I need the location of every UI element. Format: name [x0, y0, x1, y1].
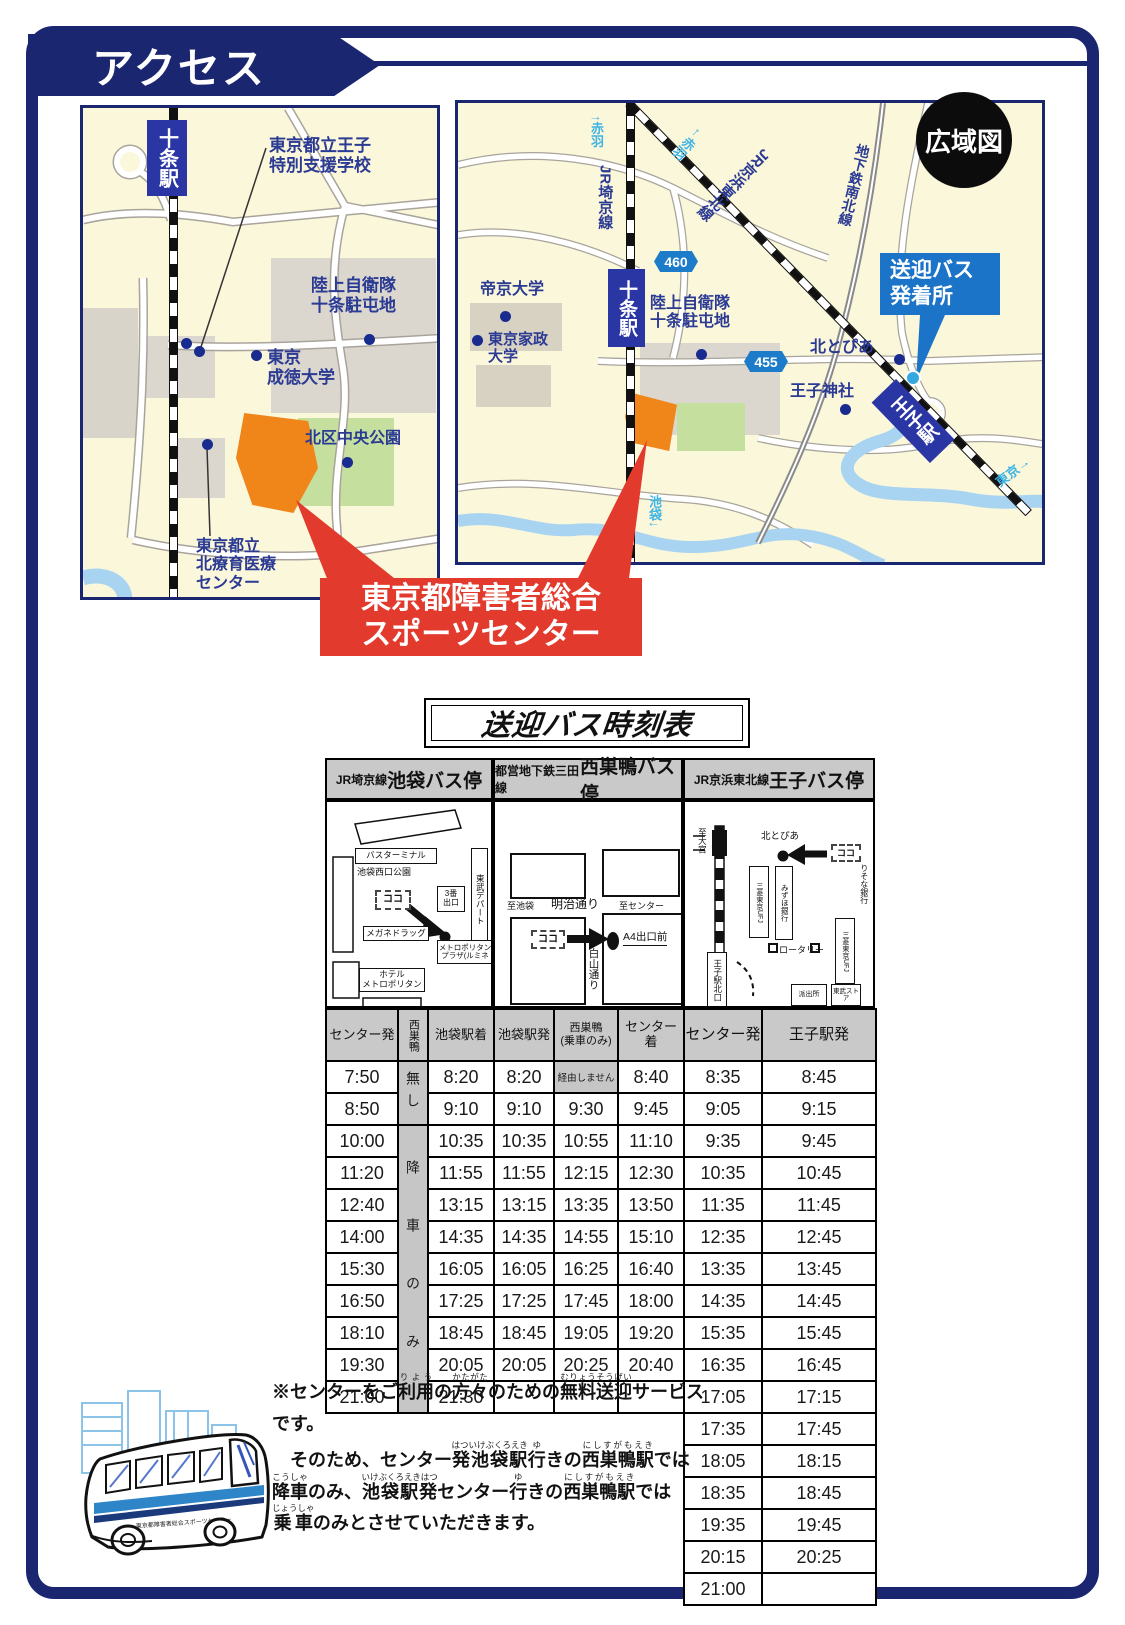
- shuttle-service-note: ※センターをご利用りようの方々かたがたのための無料送迎むりょうそうげいサービスで…: [272, 1372, 704, 1540]
- wide-area-map-badge: 広域図: [916, 92, 1012, 188]
- timetable-col-header: 西巣鴨 (乗車のみ): [554, 1009, 618, 1061]
- timetable-cell: 14:35: [428, 1221, 494, 1253]
- timetable-cell: 17:15: [762, 1381, 876, 1413]
- timetable-cell: 8:40: [618, 1061, 684, 1093]
- bus-stop-dot: [607, 932, 619, 950]
- teikyo-location-dot: [500, 311, 511, 322]
- timetable-cell: 18:45: [494, 1317, 554, 1349]
- timetable-cell: [762, 1573, 876, 1605]
- detail-map: 十条駅 東京都立王子 特別支援学校 陸上自衛隊 十条駐屯地 東京 成徳大学 北区…: [80, 105, 440, 600]
- timetable-row: 15:3016:0516:0516:2516:40: [326, 1253, 684, 1285]
- timetable-cell: 10:45: [762, 1157, 876, 1189]
- timetable-col-header: センター発: [684, 1009, 762, 1061]
- timetable-row: 14:3514:45: [684, 1285, 876, 1317]
- garrison-label: 陸上自衛隊 十条駐屯地: [650, 295, 730, 332]
- tobu-department-label: 東武デパート: [471, 848, 488, 950]
- timetable-row: 10:00降車のみ10:3510:3510:5511:10: [326, 1125, 684, 1157]
- timetable-col-header: 王子駅発: [762, 1009, 876, 1061]
- megane-drug-label: メガネドラッグ: [363, 926, 429, 941]
- timetable-row: 18:0518:15: [684, 1445, 876, 1477]
- timetable-cell: 19:05: [554, 1317, 618, 1349]
- timetable-cell: 10:35: [428, 1125, 494, 1157]
- kasei-univ-label: 東京家政 大学: [488, 331, 548, 366]
- timetable-cell: 12:35: [684, 1221, 762, 1253]
- timetable-row: 9:359:45: [684, 1125, 876, 1157]
- oji-shrine-location-dot: [840, 404, 851, 415]
- hokutopia-location-dot: [894, 354, 905, 365]
- timetable-cell: 11:20: [326, 1157, 398, 1189]
- timetable-row: 12:3512:45: [684, 1221, 876, 1253]
- here-marker: ココ: [531, 930, 565, 949]
- jr-saikyo-label: JR埼京線: [596, 165, 613, 229]
- timetable-cell: 16:05: [428, 1253, 494, 1285]
- timetable-cell: 16:05: [494, 1253, 554, 1285]
- garrison-label: 陸上自衛隊 十条駐屯地: [311, 276, 396, 315]
- timetable-left: センター発西巣鴨池袋駅着池袋駅発西巣鴨 (乗車のみ)センター着7:50無し8:2…: [325, 1008, 685, 1414]
- bus-stop-dot: [778, 851, 789, 862]
- bus-terminal-label: バスターミナル: [355, 848, 437, 864]
- shuttle-stop-pointer: [916, 315, 945, 381]
- timetable-col-header: 西巣鴨: [398, 1009, 428, 1061]
- kasei-location-dot: [472, 335, 483, 346]
- timetable-cell: 16:50: [326, 1285, 398, 1317]
- building-location-dot: [181, 338, 192, 349]
- timetable-row: 8:358:45: [684, 1061, 876, 1093]
- timetable-cell: 11:10: [618, 1125, 684, 1157]
- medical-center-label: 東京都立 北療育医療 センター: [196, 538, 276, 593]
- timetable-cell: 13:15: [494, 1189, 554, 1221]
- to-center-label: 至センター: [619, 902, 664, 912]
- medical-pointer-line: [207, 448, 210, 536]
- timetable-cell: 21:00: [684, 1573, 762, 1605]
- a4-exit-label: A4出口前: [623, 932, 667, 946]
- callout-line1: 東京都障害者総合: [361, 581, 601, 617]
- oji-north-exit-label: 王子駅北口: [707, 952, 727, 1008]
- timetable-cell: 9:35: [684, 1125, 762, 1157]
- timetable-row: 17:0517:15: [684, 1381, 876, 1413]
- timetable-row: 11:3511:45: [684, 1189, 876, 1221]
- seitoku-location-dot: [251, 350, 262, 361]
- timetable-header-row: センター発王子駅発: [684, 1009, 876, 1061]
- timetable-cell: 20:15: [684, 1541, 762, 1573]
- minimap-nishisugamo: 至池袋 明治通り 至センター ココ A4出口前 白山通り: [493, 800, 683, 1008]
- timetable-cell: 12:40: [326, 1189, 398, 1221]
- timetable-cell: 12:45: [762, 1221, 876, 1253]
- ufj-bank-label: 三菱東京UFJ: [749, 866, 769, 938]
- metropolitan-plaza-label: メトロポリタン プラザ(ルミネ: [437, 940, 493, 964]
- nishisugamo-dropoff-cell: 降車のみ: [398, 1125, 428, 1413]
- timetable-cell: 8:20: [428, 1061, 494, 1093]
- timetable-row: 8:509:109:109:309:45: [326, 1093, 684, 1125]
- timetable-cell: 17:25: [494, 1285, 554, 1317]
- here-marker: ココ: [375, 890, 411, 910]
- garrison-location-dot: [696, 349, 707, 360]
- akabane-direction-up: ↑赤羽: [588, 115, 603, 148]
- timetable-cell: 20:25: [762, 1541, 876, 1573]
- timetable-col-header: センター発: [326, 1009, 398, 1061]
- jujo-station-label: 十条駅: [147, 120, 187, 196]
- timetable-row: 21:00: [684, 1573, 876, 1605]
- section-head-oji: JR京浜東北線王子バス停: [683, 758, 875, 800]
- timetable-row: 14:0014:3514:3514:5515:10: [326, 1221, 684, 1253]
- timetable-cell: 9:10: [428, 1093, 494, 1125]
- minimap-oji: 至大宮 北とぴあ ココ りそな銀行 三菱東京UFJ みずほ銀行 ロータリー 王子…: [683, 800, 875, 1008]
- timetable-cell: 13:45: [762, 1253, 876, 1285]
- school-location-dot: [194, 346, 205, 357]
- timetable-cell: 13:50: [618, 1189, 684, 1221]
- timetable-row: 9:059:15: [684, 1093, 876, 1125]
- timetable-cell: 18:45: [428, 1317, 494, 1349]
- risona-bank-label: りそな銀行: [859, 864, 868, 904]
- hokutopia-label: 北とぴあ: [810, 339, 874, 357]
- timetable-cell: 14:45: [762, 1285, 876, 1317]
- timetable-cell: 10:35: [494, 1125, 554, 1157]
- minimap-ikebukuro: バスターミナル 池袋西口公園 ココ 3番 出口 東武デパート メガネドラッグ メ…: [325, 800, 493, 1008]
- meiji-dori-label: 明治通り: [551, 898, 599, 911]
- timetable-cell: 14:35: [684, 1285, 762, 1317]
- hakusan-dori-label: 白山通り: [587, 948, 599, 990]
- timetable-cell: 13:35: [554, 1189, 618, 1221]
- seitoku-univ-label: 東京 成徳大学: [267, 348, 335, 387]
- timetable-right: センター発王子駅発8:358:459:059:159:359:4510:3510…: [683, 1008, 877, 1606]
- mizuho-bank-label: みずほ銀行: [775, 866, 793, 940]
- page-title: アクセス: [28, 35, 266, 96]
- to-ikebukuro-label: 至池袋: [507, 902, 534, 912]
- timetable-row: 13:3513:45: [684, 1253, 876, 1285]
- here-marker: ココ: [831, 844, 861, 862]
- rotary-label: ロータリー: [779, 946, 824, 956]
- school-label: 東京都立王子 特別支援学校: [269, 136, 371, 175]
- shuttle-stop-callout: 送迎バス 発着所: [880, 253, 1000, 315]
- timetable-row: 18:1018:4518:4519:0519:20: [326, 1317, 684, 1349]
- timetable-row: 20:1520:25: [684, 1541, 876, 1573]
- timetable-cell: 18:10: [326, 1317, 398, 1349]
- timetable-cell: 9:45: [762, 1125, 876, 1157]
- timetable-cell: 19:20: [618, 1317, 684, 1349]
- timetable-col-header: 池袋駅発: [494, 1009, 554, 1061]
- medical-location-dot: [202, 439, 213, 450]
- timetable-cell: 19:45: [762, 1509, 876, 1541]
- timetable-cell: 9:15: [762, 1093, 876, 1125]
- timetable-cell: 14:35: [494, 1221, 554, 1253]
- shuttle-bus-illustration: 東京都障害者総合スポーツセンター: [70, 1385, 280, 1570]
- timetable-row: 19:3519:45: [684, 1509, 876, 1541]
- timetable-row: 16:5017:2517:2517:4518:00: [326, 1285, 684, 1317]
- timetable-cell: 18:00: [618, 1285, 684, 1317]
- timetable-cell: 17:45: [762, 1413, 876, 1445]
- timetable-cell: 8:45: [762, 1061, 876, 1093]
- garrison-location-dot: [364, 334, 375, 345]
- timetable-cell: 8:35: [684, 1061, 762, 1093]
- route-455-badge: 455: [744, 351, 788, 372]
- timetable-row: 18:3518:45: [684, 1477, 876, 1509]
- oji-shrine-label: 王子神社: [790, 383, 854, 401]
- access-flyer-page: アクセス: [0, 0, 1125, 1625]
- timetable-cell: 16:25: [554, 1253, 618, 1285]
- hotel-metropolitan-label: ホテル メトロポリタン: [359, 968, 425, 992]
- note-paragraph-2: そのため、センター発池袋駅はついけぶくろえき行ゆきの西巣鴨駅にしすがもえきでは降…: [272, 1440, 704, 1540]
- timetable-cell: 17:45: [554, 1285, 618, 1317]
- route-460-badge: 460: [654, 251, 698, 272]
- timetable-row: 12:4013:1513:1513:3513:50: [326, 1189, 684, 1221]
- section-head-ikebukuro: JR埼京線池袋バス停: [325, 758, 493, 800]
- callout-line2: スポーツセンター: [361, 617, 601, 653]
- timetable-cell: 18:45: [762, 1477, 876, 1509]
- timetable-header-row: センター発西巣鴨池袋駅着池袋駅発西巣鴨 (乗車のみ)センター着: [326, 1009, 684, 1061]
- timetable-title: 送迎バス時刻表: [480, 702, 694, 744]
- timetable-cell: 9:10: [494, 1093, 554, 1125]
- timetable-cell: 15:45: [762, 1317, 876, 1349]
- ufj-bank2-label: 三菱東京UFJ: [835, 918, 855, 984]
- tobu-store-label: 東武ストア: [831, 984, 861, 1006]
- timetable-row: 11:2011:5511:5512:1512:30: [326, 1157, 684, 1189]
- timetable-cell: 14:00: [326, 1221, 398, 1253]
- hokutopia-label: 北とぴあ: [761, 832, 799, 842]
- timetable-cell: 16:45: [762, 1349, 876, 1381]
- timetable-cell: 13:15: [428, 1189, 494, 1221]
- timetable-cell: 10:35: [684, 1157, 762, 1189]
- timetable-cell: 14:55: [554, 1221, 618, 1253]
- timetable-row: 7:50無し8:208:20経由しません8:40: [326, 1061, 684, 1093]
- timetable-cell: 11:35: [684, 1189, 762, 1221]
- nishiguchi-park-label: 池袋西口公園: [357, 868, 411, 878]
- timetable-cell: 8:50: [326, 1093, 398, 1125]
- river: [847, 395, 1045, 502]
- timetable-cell: 12:30: [618, 1157, 684, 1189]
- timetable-cell: 15:35: [684, 1317, 762, 1349]
- ikebukuro-direction: 池袋↓: [646, 495, 661, 528]
- nishisugamo-none-cell: 無し: [398, 1061, 428, 1125]
- exit3-label: 3番 出口: [437, 886, 465, 912]
- timetable-cell: 15:10: [618, 1221, 684, 1253]
- note-paragraph-1: ※センターをご利用りようの方々かたがたのための無料送迎むりょうそうげいサービスで…: [272, 1372, 704, 1440]
- timetable-row: 15:3515:45: [684, 1317, 876, 1349]
- timetable-title-box: 送迎バス時刻表: [424, 698, 750, 748]
- section-head-nishisugamo: 都営地下鉄三田線西巣鴨バス停: [493, 758, 683, 800]
- timetable-cell: 8:20: [494, 1061, 554, 1093]
- timetable-cell: 10:55: [554, 1125, 618, 1157]
- timetable-col-header: センター着: [618, 1009, 684, 1061]
- timetable-cell: 13:35: [684, 1253, 762, 1285]
- timetable-row: 17:3517:45: [684, 1413, 876, 1445]
- timetable-cell: 9:30: [554, 1093, 618, 1125]
- timetable-cell: 11:55: [428, 1157, 494, 1189]
- school-pointer-line: [200, 148, 266, 350]
- timetable-cell: 16:40: [618, 1253, 684, 1285]
- timetable-cell: 11:45: [762, 1189, 876, 1221]
- timetable-cell: 経由しません: [554, 1061, 618, 1093]
- sports-center-callout: 東京都障害者総合 スポーツセンター: [320, 578, 642, 656]
- page-title-banner: アクセス: [28, 34, 380, 96]
- timetable-cell: 17:25: [428, 1285, 494, 1317]
- jujo-station-label: 十条駅: [608, 269, 645, 347]
- timetable-cell: 11:55: [494, 1157, 554, 1189]
- park-label: 北区中央公園: [305, 430, 401, 448]
- timetable-cell: 10:00: [326, 1125, 398, 1157]
- timetable-cell: 15:30: [326, 1253, 398, 1285]
- to-omiya-label: 至大宮: [697, 828, 706, 854]
- banner-rule-line: [372, 61, 1094, 66]
- timetable-row: 10:3510:45: [684, 1157, 876, 1189]
- police-box-label: 派出所: [791, 984, 827, 1006]
- timetable-cell: 9:45: [618, 1093, 684, 1125]
- timetable-col-header: 池袋駅着: [428, 1009, 494, 1061]
- timetable-cell: 18:15: [762, 1445, 876, 1477]
- timetable-cell: 9:05: [684, 1093, 762, 1125]
- timetable-cell: 12:15: [554, 1157, 618, 1189]
- park-location-dot: [342, 457, 353, 468]
- teikyo-univ-label: 帝京大学: [480, 281, 544, 299]
- timetable-row: 16:3516:45: [684, 1349, 876, 1381]
- timetable-cell: 7:50: [326, 1061, 398, 1093]
